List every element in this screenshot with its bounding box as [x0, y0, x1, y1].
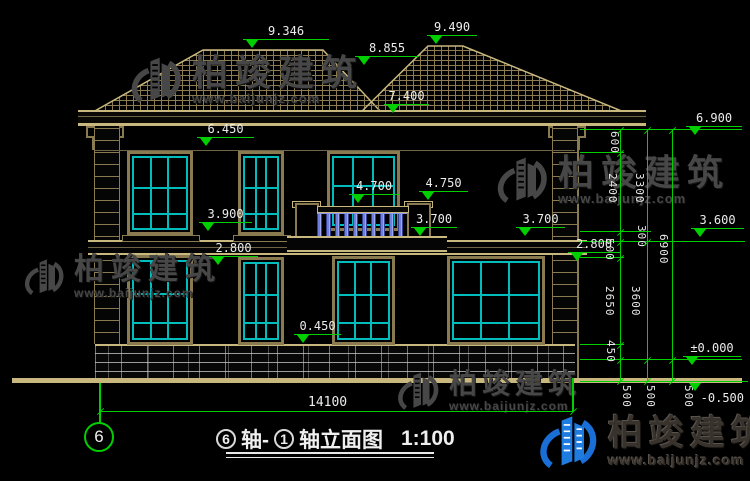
company-logo-icon [536, 410, 600, 474]
axis-bubble-6: 6 [84, 422, 114, 452]
elev-triangle-icon [297, 335, 309, 343]
brand-logo-icon [22, 255, 66, 299]
elev-porch-top: 7.400 [384, 89, 429, 105]
company-logo: 柏竣建筑 www.baijunjz.com [536, 410, 750, 474]
window-glazing [337, 261, 390, 340]
dim-line-width [100, 411, 573, 412]
elev-triangle-icon [571, 253, 583, 261]
elev-grade: -0.500 [686, 381, 744, 406]
elev-triangle-icon [352, 195, 364, 203]
dim-500-base1: 500 [620, 385, 633, 408]
title-underline-2 [226, 457, 434, 458]
elev-sill1: 0.450 [294, 319, 341, 335]
window-glazing [243, 262, 279, 340]
title-name: 轴立面图 [299, 424, 383, 454]
dim-14100: 14100 [308, 395, 347, 410]
left-corner-quoins [94, 126, 120, 344]
elev-triangle-icon [689, 383, 701, 391]
elev-triangle-icon [358, 57, 370, 65]
elev-triangle-icon [519, 228, 531, 236]
axis-line-right [572, 378, 574, 412]
dim-2650: 2650 [603, 286, 616, 317]
title-underline [226, 452, 434, 454]
dim-ext-line [580, 129, 742, 130]
window-2f-1 [127, 151, 193, 235]
elev-floor2: 3.600 [691, 213, 744, 229]
elev-zero: ±0.000 [683, 341, 741, 357]
dim-2400: 2400 [606, 173, 619, 204]
elev-triangle-icon [387, 105, 399, 113]
elev-sill2: 3.900 [199, 207, 252, 223]
window-glazing [132, 156, 188, 230]
drawing-title: 6轴-1轴立面图1:100 [216, 424, 455, 454]
watermark-top: 柏竣建筑 www.baijunjz.com [128, 52, 364, 108]
dim-500-base2: 500 [644, 385, 657, 408]
dim-3300: 3300 [633, 173, 646, 204]
dim-ext-line [580, 257, 624, 258]
balcony-rail [317, 206, 409, 213]
dim-6900: 6900 [657, 234, 670, 265]
watermark-brand: 柏竣建筑 [74, 254, 222, 286]
elev-pent-right: 3.700 [516, 212, 565, 228]
elev-eave-right: 6.900 [686, 111, 742, 127]
elev-eave: 6.450 [197, 122, 254, 138]
watermark-url: www.baijunjz.com [192, 91, 364, 106]
dim-chain-middle [647, 130, 648, 381]
elev-valley: 8.855 [355, 41, 419, 57]
dim-ext-line [580, 344, 624, 345]
watermark-brand: 柏竣建筑 [449, 369, 581, 398]
company-brand: 柏竣建筑 [608, 416, 750, 453]
elev-triangle-icon [246, 40, 258, 48]
elev-triangle-icon [200, 138, 212, 146]
watermark-brand: 柏竣建筑 [192, 54, 364, 92]
elev-triangle-icon [414, 228, 426, 236]
elev-triangle-icon [212, 257, 224, 265]
axis-bubble-end: 1 [274, 429, 294, 449]
elev-lintel1-left: 2.800 [209, 241, 258, 257]
elev-roof-left: 9.346 [243, 24, 329, 40]
title-scale: 1:100 [401, 427, 455, 451]
roof-cornice [78, 110, 646, 126]
elev-triangle-icon [694, 229, 706, 237]
watermark-left: 柏竣建筑 www.baijunjz.com [22, 254, 222, 300]
axis-bubble-start: 6 [216, 429, 236, 449]
balcony-slab [287, 236, 447, 252]
window-1f-2 [238, 257, 284, 345]
brand-logo-icon [395, 368, 441, 414]
window-sill [122, 235, 200, 242]
watermark-url: www.baijunjz.com [74, 286, 222, 300]
watermark-bottom: 柏竣建筑 www.baijunjz.com [395, 368, 581, 414]
elev-pent-left: 3.700 [411, 212, 457, 228]
elev-balcony: 4.700 [349, 179, 399, 195]
elev-triangle-icon [422, 192, 434, 200]
brand-logo-icon [128, 52, 184, 108]
elev-triangle-icon [689, 127, 701, 135]
elev-pent-top: 4.750 [419, 176, 468, 192]
dim-3600: 3600 [629, 286, 642, 317]
window-1f-4 [447, 256, 545, 345]
elev-triangle-icon [686, 357, 698, 365]
company-url: www.baijunjz.com [608, 452, 750, 468]
axis-line-left [99, 383, 101, 423]
title-sep: 轴- [241, 424, 269, 454]
window-1f-3 [332, 256, 395, 345]
elevation-drawing: 柏竣建筑 www.baijunjz.com 柏竣建筑 www.baijunjz.… [0, 0, 750, 481]
dim-450: 450 [604, 340, 617, 363]
elev-lintel1-right: 2.800 [568, 237, 620, 253]
brand-logo-icon [494, 152, 550, 208]
elev-triangle-icon [430, 36, 442, 44]
window-glazing [452, 261, 540, 340]
dim-600: 600 [608, 131, 621, 154]
dim-chain-outer [672, 130, 673, 381]
elev-roof-right: 9.490 [427, 20, 477, 36]
elev-triangle-icon [202, 223, 214, 231]
